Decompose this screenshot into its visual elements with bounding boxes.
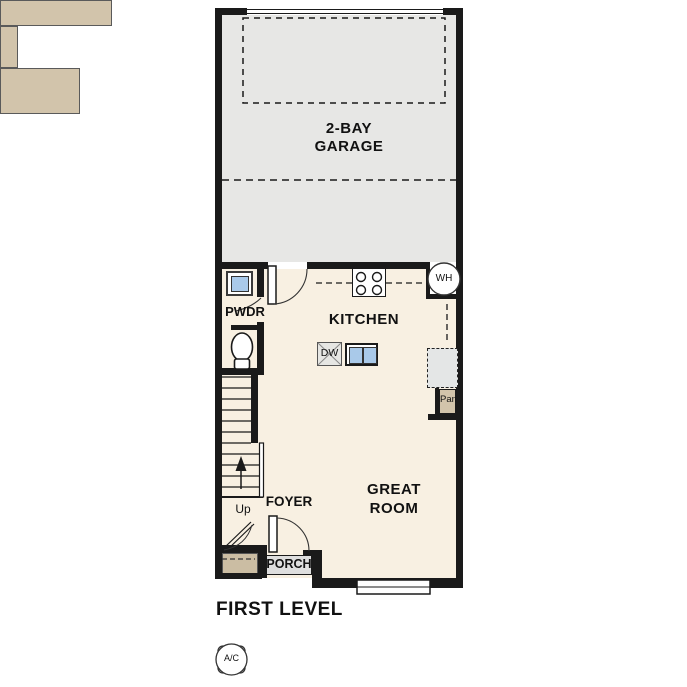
stairs-up-label: Up: [231, 503, 255, 516]
wall-stoop-bottom: [215, 573, 262, 579]
wall-pantry-bottom: [428, 414, 463, 420]
kitchen-island: [0, 68, 80, 114]
powder-room-label: PWDR: [222, 305, 268, 319]
vanity-sink: [231, 276, 249, 292]
wall-garage-bottom-left: [215, 262, 268, 269]
kitchen-counter-column: [0, 26, 18, 68]
kitchen-counter: [0, 0, 112, 26]
pantry-label: Pan: [440, 395, 456, 408]
wall-powder-right-top: [257, 269, 264, 297]
wall-bottom: [312, 578, 463, 588]
wall-stairs-right: [251, 373, 258, 443]
great-room-label-line2: ROOM: [344, 501, 444, 518]
dishwasher-label: DW: [317, 348, 342, 360]
wall-top-right: [443, 8, 463, 15]
garage-label-line2: GARAGE: [299, 139, 399, 156]
porch-label: PORCH: [266, 558, 312, 572]
kitchen-label: KITCHEN: [314, 312, 414, 329]
refrigerator-space: [427, 348, 458, 388]
powder-vanity: [226, 271, 253, 296]
garage-label-line1: 2-BAY: [299, 121, 399, 138]
foyer-label: FOYER: [264, 495, 314, 510]
garage-door: [247, 9, 443, 14]
wall-top-left: [215, 8, 247, 15]
plan-title: FIRST LEVEL: [216, 600, 356, 621]
entry-stoop: [222, 553, 258, 574]
stove: [352, 268, 386, 297]
island-sink: [345, 343, 378, 366]
sink-basin-right: [363, 347, 377, 364]
sink-basin-left: [349, 347, 363, 364]
wall-left: [215, 8, 222, 578]
floor-plan: 2-BAY GARAGE KITCHEN GREAT ROOM PWDR FOY…: [0, 0, 687, 687]
ac-label: A/C: [219, 654, 244, 664]
wall-powder-halfwall: [231, 325, 264, 330]
great-room-label-line1: GREAT: [344, 482, 444, 499]
water-heater-label: WH: [428, 273, 460, 284]
